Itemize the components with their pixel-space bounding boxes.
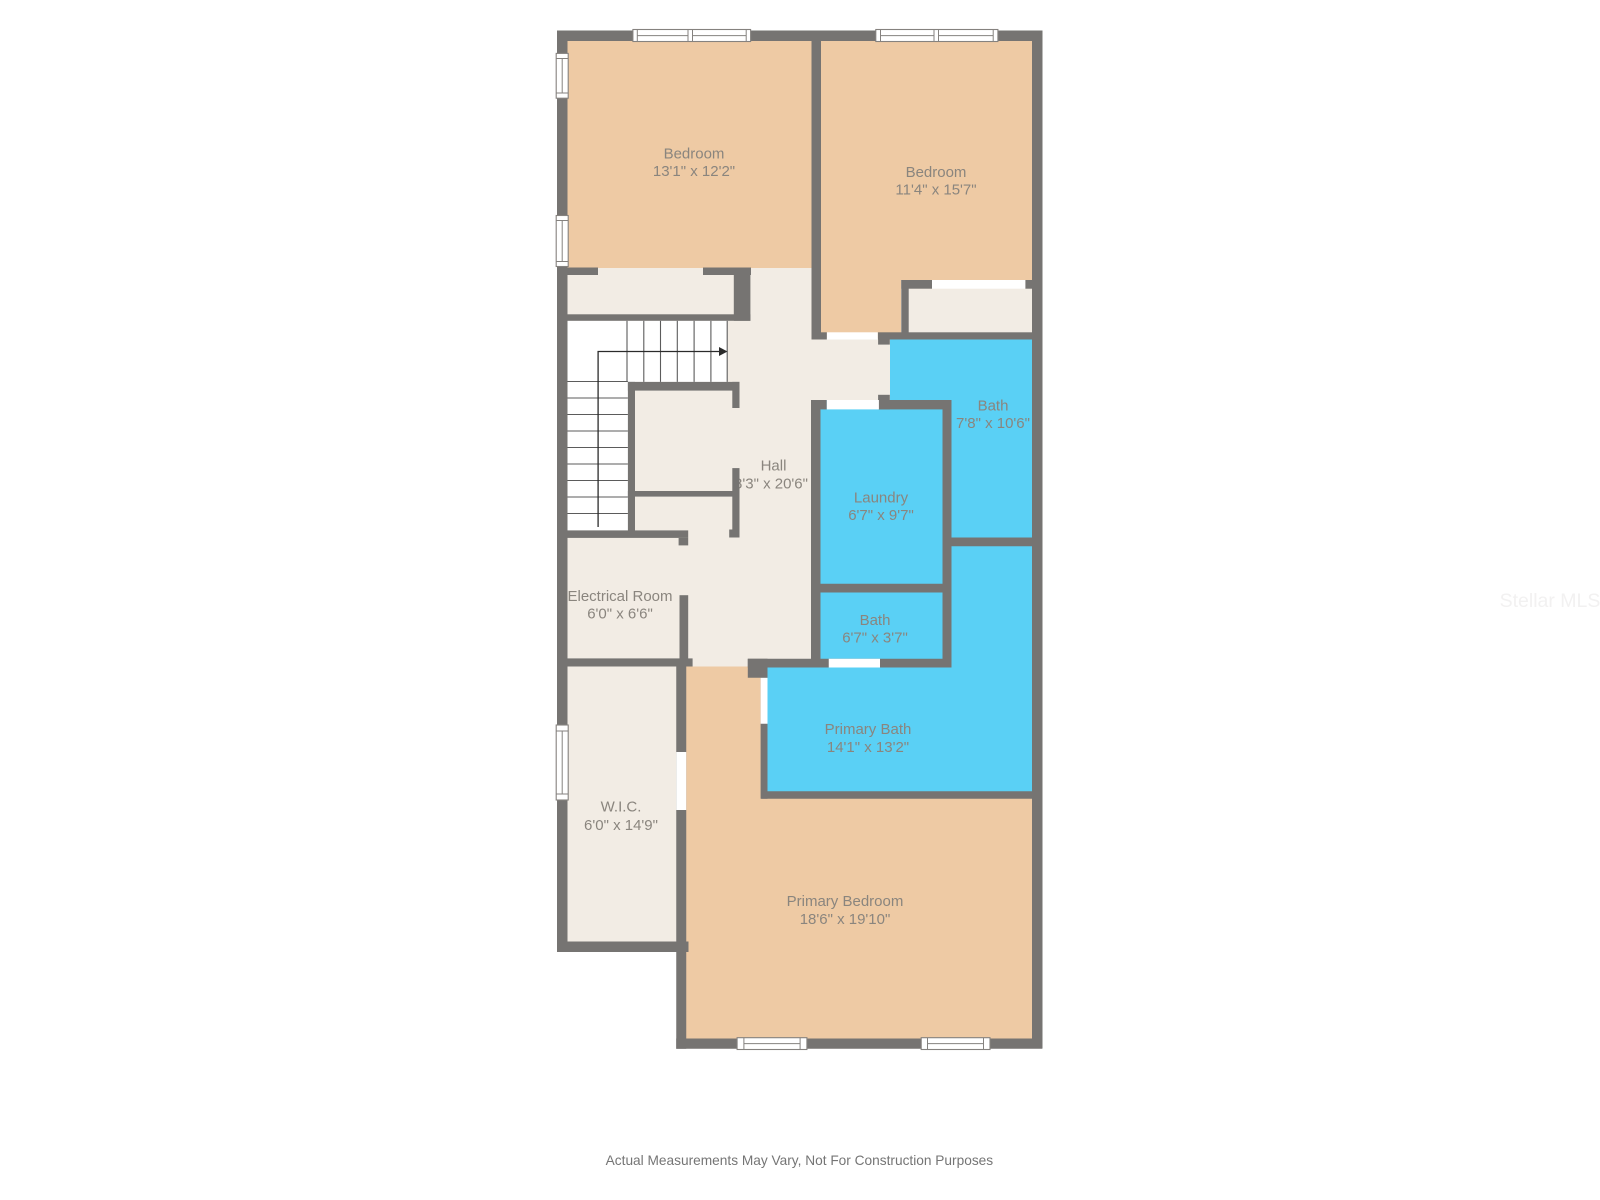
svg-text:6'0" x 14'9": 6'0" x 14'9"	[584, 817, 658, 834]
svg-text:11'4" x 15'7": 11'4" x 15'7"	[895, 182, 976, 199]
svg-text:Hall: Hall	[761, 458, 787, 475]
svg-text:Primary Bath: Primary Bath	[825, 721, 912, 738]
svg-text:8'3" x 20'6": 8'3" x 20'6"	[734, 476, 808, 493]
svg-text:W.I.C.: W.I.C.	[601, 798, 642, 815]
svg-text:6'7" x 3'7": 6'7" x 3'7"	[842, 630, 908, 647]
svg-text:Laundry: Laundry	[854, 490, 909, 507]
svg-text:Stellar MLS: Stellar MLS	[1500, 590, 1600, 612]
svg-text:Bedroom: Bedroom	[906, 164, 967, 181]
svg-text:Primary Bedroom: Primary Bedroom	[787, 893, 904, 910]
svg-text:14'1" x 13'2": 14'1" x 13'2"	[827, 739, 909, 756]
svg-text:18'6" x 19'10": 18'6" x 19'10"	[800, 911, 891, 928]
svg-text:Electrical Room: Electrical Room	[567, 588, 672, 605]
svg-text:Actual Measurements May Vary,: Actual Measurements May Vary, Not For Co…	[606, 1153, 994, 1168]
svg-text:Bath: Bath	[860, 612, 891, 629]
svg-text:Bedroom: Bedroom	[664, 146, 725, 163]
svg-text:6'7" x 9'7": 6'7" x 9'7"	[848, 507, 914, 524]
svg-text:6'0" x 6'6": 6'0" x 6'6"	[587, 606, 653, 623]
svg-text:13'1" x 12'2": 13'1" x 12'2"	[653, 163, 735, 180]
svg-text:7'8" x 10'6": 7'8" x 10'6"	[956, 415, 1030, 432]
svg-text:Bath: Bath	[978, 398, 1009, 415]
